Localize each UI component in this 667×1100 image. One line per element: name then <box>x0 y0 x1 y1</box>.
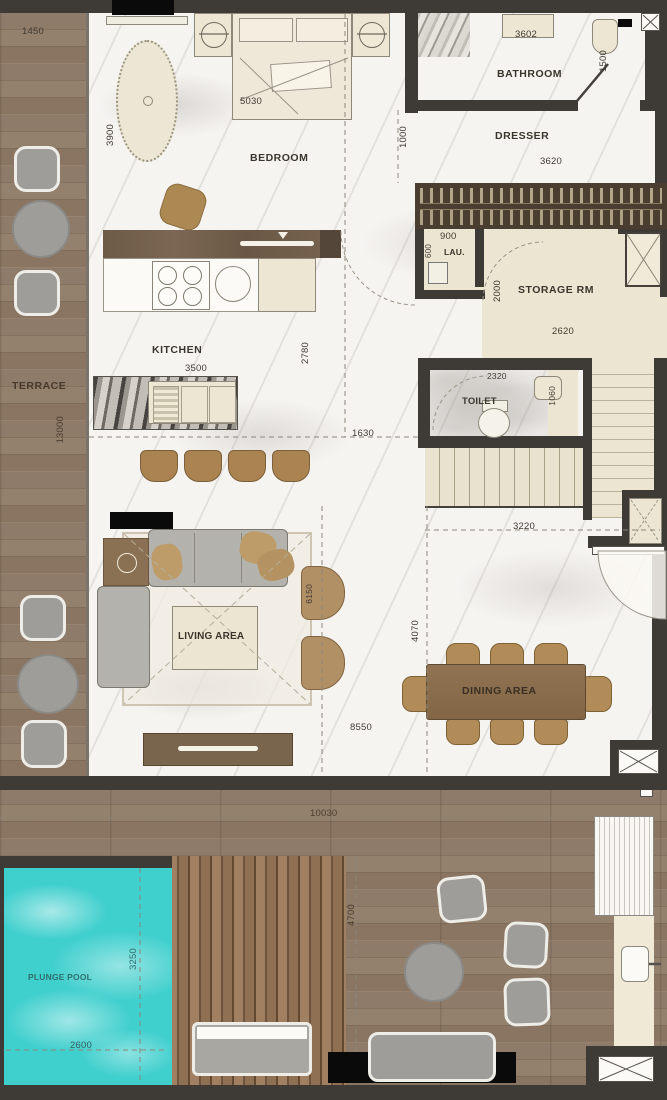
dim-6150: 6150 <box>304 584 314 604</box>
burner-1 <box>158 266 177 285</box>
br-vent-panel <box>598 1056 654 1082</box>
room-label-storage: STORAGE RM <box>518 284 594 296</box>
vent-panel <box>618 749 659 774</box>
bar-stool-4 <box>272 450 310 482</box>
window-black-top <box>112 0 174 15</box>
pillow-left <box>239 18 293 42</box>
wall-bottom-edge <box>0 1085 667 1100</box>
folded-sheet <box>270 60 332 92</box>
wall-lau-left <box>415 225 424 297</box>
island-door-1 <box>181 386 208 423</box>
room-label-kitchen: KITCHEN <box>152 344 202 356</box>
dim-5030: 5030 <box>240 96 262 107</box>
wall-bath-bottom-l <box>418 100 578 111</box>
wardrobe-hangers-top <box>420 188 662 204</box>
dim-1000: 1000 <box>398 126 409 148</box>
bathtub-drain <box>143 96 153 106</box>
shaft-box <box>625 232 662 287</box>
entry-door-leaf <box>592 546 665 555</box>
room-label-laundry: LAU. <box>444 247 465 257</box>
dim-2620: 2620 <box>552 326 574 337</box>
bar-stool-2 <box>184 450 222 482</box>
terrace-chair-1 <box>14 146 60 192</box>
outdoor-sink <box>621 946 649 982</box>
dim-3500: 3500 <box>185 363 207 374</box>
dim-2600: 2600 <box>70 1040 92 1051</box>
outdoor-bench <box>368 1032 496 1082</box>
outdoor-chair-2 <box>503 921 549 969</box>
louver-door <box>594 816 654 916</box>
wall-top <box>0 0 667 13</box>
terrace-edge-line <box>86 13 89 778</box>
room-label-living: LIVING AREA <box>178 631 244 642</box>
living-window-black <box>110 512 173 529</box>
dining-chair-b3 <box>534 719 568 745</box>
dim-8550: 8550 <box>350 722 372 733</box>
dim-13000: 13000 <box>55 416 66 443</box>
room-label-pool: PLUNGE POOL <box>28 972 92 982</box>
bar-stool-3 <box>228 450 266 482</box>
wardrobe <box>415 183 667 229</box>
burner-3 <box>158 287 177 306</box>
dim-900: 900 <box>440 231 456 242</box>
wall-lau-right <box>475 225 484 287</box>
lounger-pillow <box>197 1027 307 1039</box>
stove <box>152 261 210 310</box>
kitchen-tall-unit <box>258 258 316 312</box>
wall-toilet-right <box>583 358 592 520</box>
corner-vent <box>641 13 660 31</box>
wall-toilet-top <box>420 358 590 370</box>
floor-plan: 1450 3900 5030 BEDROOM 3602 1500 BATHROO… <box>0 0 667 1100</box>
room-label-toilet: TOILET <box>462 396 497 407</box>
pool-wall-left <box>0 856 4 1100</box>
kitchen-sink <box>215 266 251 302</box>
side-table-fan-icon <box>117 553 137 573</box>
outdoor-chair-1 <box>436 874 489 925</box>
wardrobe-hangers-bottom <box>420 209 662 225</box>
island-door-2 <box>209 386 236 423</box>
deck-lounger <box>192 1022 312 1076</box>
island-sink-unit <box>148 381 236 424</box>
burner-2 <box>183 266 202 285</box>
lamp-right-icon <box>359 22 385 48</box>
window-sill-right <box>629 498 662 544</box>
dim-1450: 1450 <box>22 26 44 37</box>
wall-bed-bath <box>405 13 418 113</box>
room-label-dining: DINING AREA <box>462 685 537 697</box>
dining-chair-b2 <box>490 719 524 745</box>
dim-600: 600 <box>424 244 433 258</box>
stairs-floor <box>425 448 590 508</box>
outdoor-counter <box>614 916 654 1048</box>
dim-1500: 1500 <box>598 50 609 72</box>
wall-toilet-bottom <box>418 436 590 448</box>
dining-chair-b1 <box>446 719 480 745</box>
terrace-chair-3 <box>20 595 66 641</box>
tv <box>178 746 258 751</box>
bedroom-shelf <box>106 16 188 25</box>
media-cabinet-end <box>320 230 341 258</box>
dim-3250: 3250 <box>128 948 139 970</box>
dim-3620: 3620 <box>540 156 562 167</box>
sofa-left <box>97 586 150 688</box>
washer <box>428 262 448 284</box>
dim-4070: 4070 <box>410 620 421 642</box>
dim-2000: 2000 <box>492 280 503 302</box>
wall-lau-bottom <box>415 290 485 299</box>
pillow-right <box>296 18 348 42</box>
dining-chair-right <box>584 676 612 712</box>
dim-3900: 3900 <box>105 124 116 146</box>
cabinet-handle <box>240 241 314 246</box>
burner-4 <box>183 287 202 306</box>
wall-bottom-band <box>0 776 667 790</box>
shower-floor <box>418 13 470 57</box>
dim-3220: 3220 <box>513 521 535 532</box>
terrace-chair-2 <box>14 270 60 316</box>
bathroom-wc <box>592 19 618 54</box>
outdoor-table-round <box>404 942 464 1002</box>
sofa-seam-1 <box>194 533 195 583</box>
dim-1630: 1630 <box>352 428 374 439</box>
dim-2780: 2780 <box>300 342 311 364</box>
terrace-table-1 <box>12 200 70 258</box>
dim-4700: 4700 <box>346 904 357 926</box>
pool-wall-top <box>0 856 172 868</box>
wall-toilet-left <box>418 358 430 448</box>
wall-dresser-right <box>655 108 667 185</box>
island-louvers <box>153 386 179 423</box>
bathroom-chip <box>618 19 632 27</box>
lamp-left-icon <box>201 22 227 48</box>
dim-10030: 10030 <box>310 808 337 819</box>
terrace-table-2 <box>17 654 79 714</box>
room-label-bathroom: BATHROOM <box>497 68 562 80</box>
room-label-terrace: TERRACE <box>12 380 66 392</box>
room-label-dresser: DRESSER <box>495 130 549 142</box>
dim-3602: 3602 <box>515 29 537 40</box>
outdoor-chair-3 <box>503 977 551 1027</box>
toilet-wc <box>478 408 510 438</box>
room-label-bedroom: BEDROOM <box>250 152 308 164</box>
dim-1060: 1060 <box>547 386 557 406</box>
terrace-chair-4 <box>21 720 67 768</box>
bar-stool-1 <box>140 450 178 482</box>
dim-2320: 2320 <box>487 371 507 381</box>
